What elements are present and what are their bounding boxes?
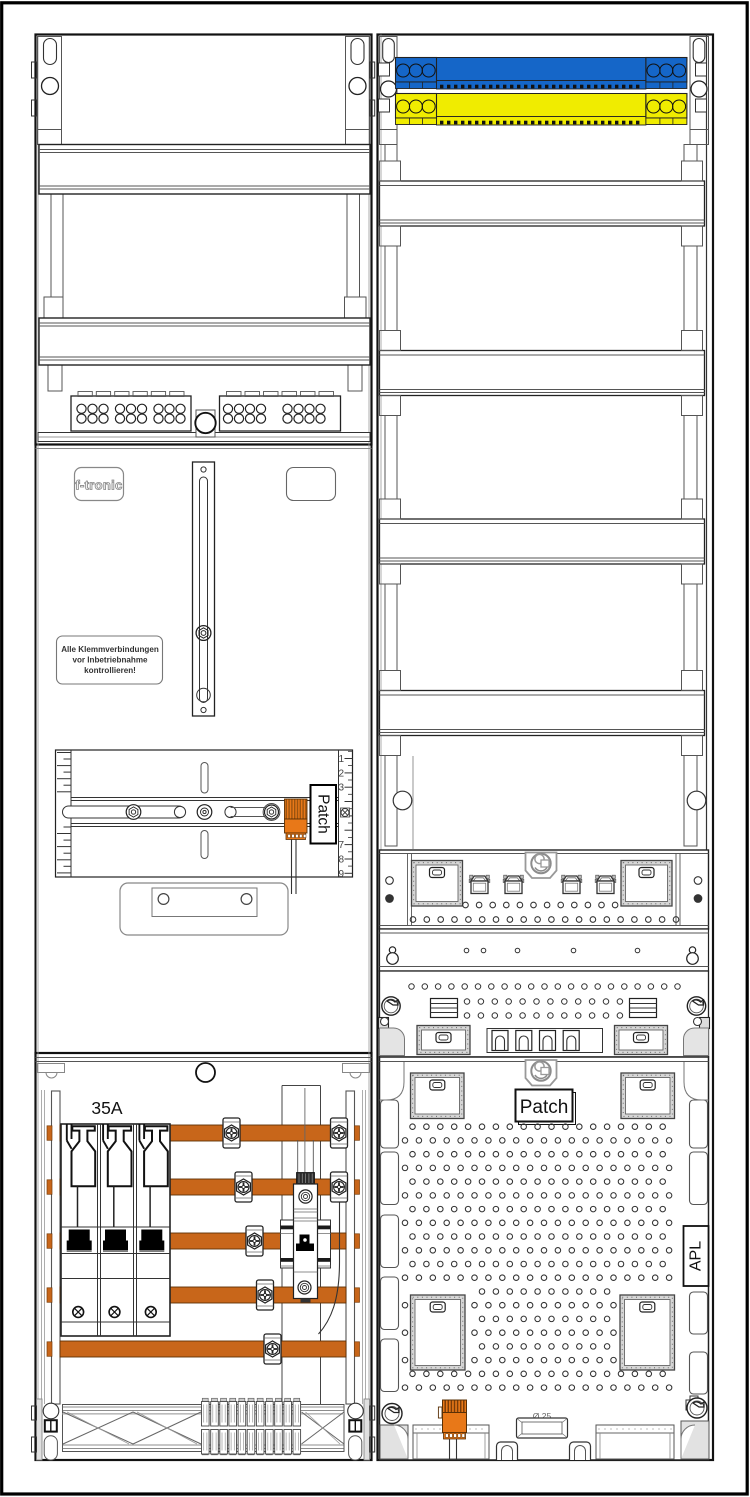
svg-text:Alle Klemmverbindungen: Alle Klemmverbindungen bbox=[61, 645, 159, 654]
svg-text:APL: APL bbox=[688, 1241, 705, 1271]
svg-text:7: 7 bbox=[338, 840, 344, 851]
svg-text:9: 9 bbox=[338, 869, 344, 880]
svg-text:Patch: Patch bbox=[520, 1097, 569, 1118]
svg-text:f-tronic: f-tronic bbox=[75, 478, 122, 493]
svg-text:kontrollieren!: kontrollieren! bbox=[84, 666, 136, 675]
svg-text:35A: 35A bbox=[91, 1098, 122, 1118]
svg-text:2: 2 bbox=[338, 768, 344, 779]
svg-text:1: 1 bbox=[338, 754, 344, 765]
svg-text:3: 3 bbox=[338, 783, 344, 794]
svg-text:Patch: Patch bbox=[315, 794, 332, 834]
svg-text:8: 8 bbox=[338, 855, 344, 866]
svg-text:vor Inbetriebnahme: vor Inbetriebnahme bbox=[72, 656, 148, 665]
